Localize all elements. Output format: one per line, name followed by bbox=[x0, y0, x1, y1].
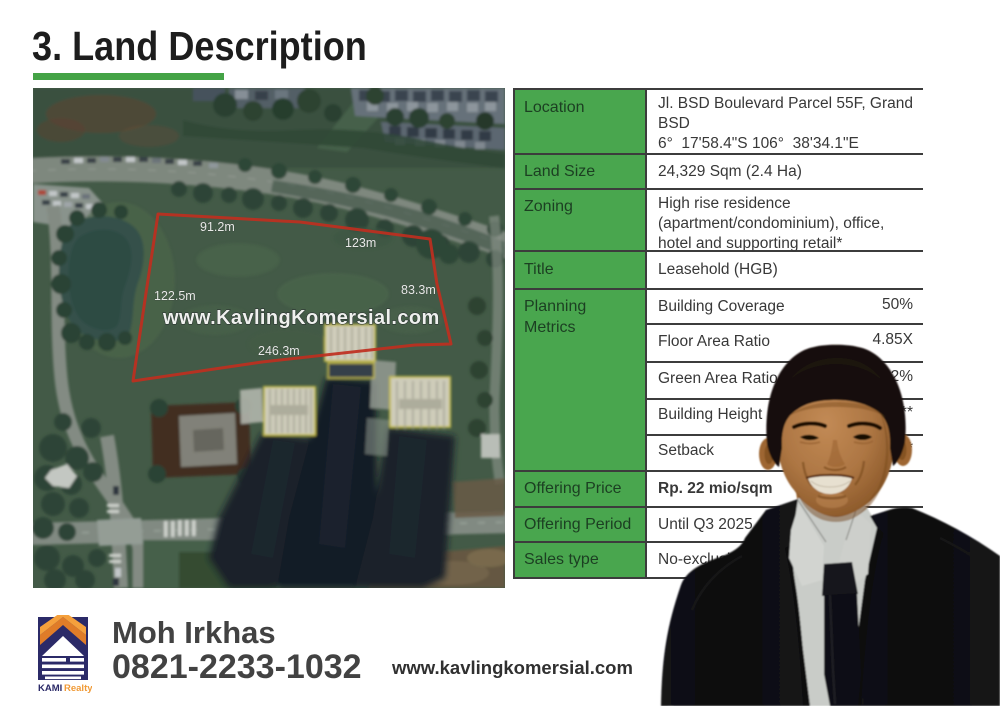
svg-text:123m: 123m bbox=[345, 236, 376, 250]
svg-text:122.5m: 122.5m bbox=[154, 289, 196, 303]
svg-text:KAMI: KAMI bbox=[38, 683, 62, 694]
svg-text:www.KavlingKomersial.com: www.KavlingKomersial.com bbox=[162, 307, 440, 329]
svg-text:246.3m: 246.3m bbox=[258, 344, 300, 358]
svg-text:Realty: Realty bbox=[64, 683, 92, 694]
svg-text:91.2m: 91.2m bbox=[200, 220, 235, 234]
svg-text:83.3m: 83.3m bbox=[401, 283, 436, 297]
